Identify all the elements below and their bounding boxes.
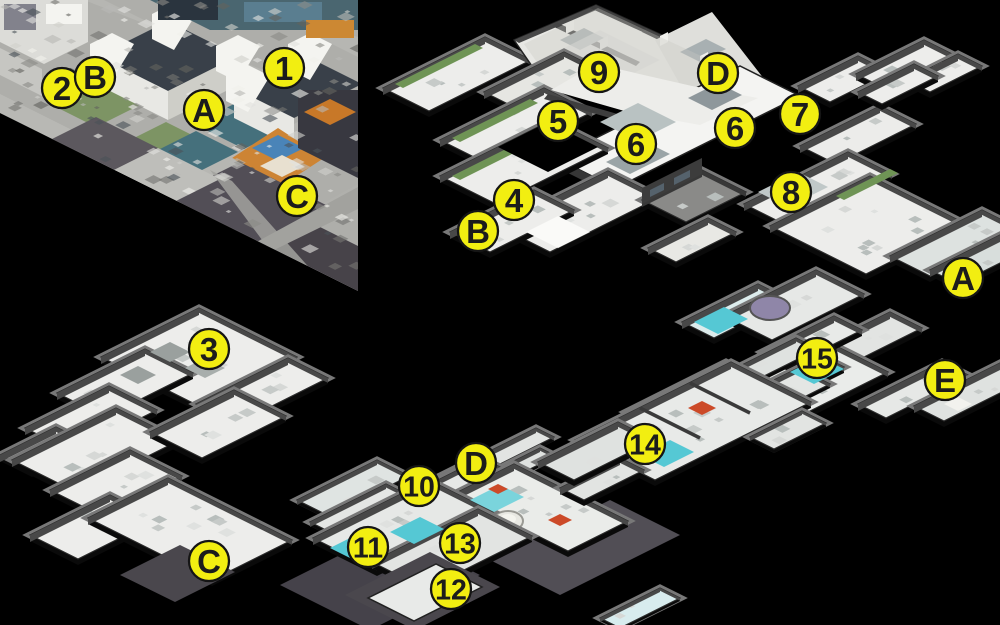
svg-text:B: B <box>83 59 107 96</box>
svg-text:6: 6 <box>627 126 645 163</box>
svg-text:A: A <box>951 260 975 297</box>
svg-text:C: C <box>285 178 309 215</box>
svg-text:2: 2 <box>53 70 71 107</box>
svg-text:A: A <box>192 92 216 129</box>
svg-text:1: 1 <box>275 50 293 87</box>
svg-text:15: 15 <box>801 343 833 375</box>
svg-text:B: B <box>466 213 490 250</box>
svg-text:5: 5 <box>549 103 567 140</box>
svg-text:C: C <box>197 543 221 580</box>
svg-text:D: D <box>464 445 488 482</box>
svg-text:7: 7 <box>791 96 809 133</box>
svg-text:12: 12 <box>435 574 467 606</box>
svg-text:E: E <box>934 362 956 399</box>
svg-text:3: 3 <box>200 331 218 368</box>
svg-text:10: 10 <box>403 471 435 503</box>
svg-text:9: 9 <box>590 54 608 91</box>
svg-text:4: 4 <box>505 182 524 219</box>
svg-text:8: 8 <box>782 174 800 211</box>
svg-text:D: D <box>706 55 730 92</box>
svg-text:14: 14 <box>629 429 661 461</box>
svg-text:6: 6 <box>726 110 744 147</box>
svg-text:11: 11 <box>353 532 383 564</box>
svg-text:13: 13 <box>444 528 476 560</box>
